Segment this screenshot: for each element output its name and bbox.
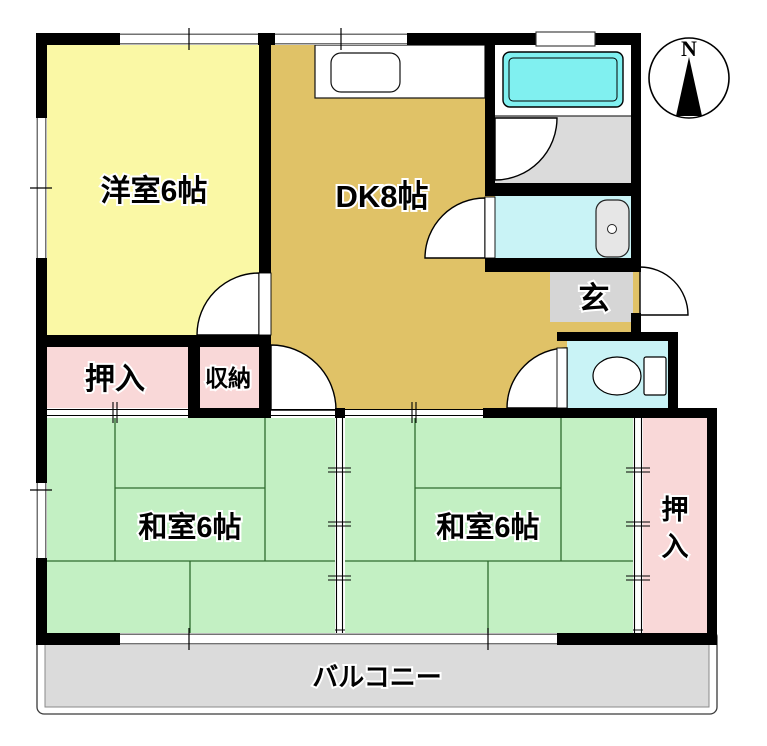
label-dk: DK8帖: [335, 179, 428, 214]
washbasin-unit: [596, 200, 629, 257]
wall-bath-left: [485, 33, 495, 196]
wall-bath-left-post: [485, 258, 495, 272]
wall-bottom-2: [557, 633, 717, 645]
label-closet-right-2: 入: [662, 532, 689, 562]
label-entrance: 玄: [579, 281, 610, 316]
closet-right: [643, 418, 707, 633]
wall-washbasin-entrance: [495, 258, 641, 272]
wall-fusuma-post: [335, 408, 345, 418]
label-western-room: 洋室6帖: [101, 174, 208, 208]
wall-top-3: [407, 33, 536, 45]
wall-mid-south: [483, 408, 717, 418]
window-bath-top: [536, 32, 595, 46]
kitchen-sink: [331, 53, 400, 92]
compass-north-label: N: [681, 36, 697, 61]
label-balcony: バルコニー: [312, 662, 441, 692]
wall-closet-divider: [188, 347, 200, 418]
wall-storage-right: [259, 347, 271, 418]
wall-right-top: [631, 33, 641, 270]
toilet-bowl: [593, 357, 641, 395]
wall-toilet-right: [668, 332, 678, 418]
bathtub: [503, 52, 623, 107]
door-leaf-washbasin: [485, 197, 495, 258]
wall-right-bottom: [707, 408, 717, 645]
window-gap: [536, 32, 595, 46]
label-closet-right-1: 押: [662, 495, 689, 525]
wall-left-1: [36, 33, 47, 118]
floor-plan: 洋室6帖 DK8帖 押入 収納 玄 和室6帖 和室6帖 押 入 バルコニー N: [0, 0, 767, 746]
label-storage: 収納: [205, 365, 251, 391]
wall-western-dk: [259, 33, 271, 273]
door-leaf-toilet: [557, 348, 567, 408]
toilet: [593, 357, 666, 395]
bathtub-outer: [503, 52, 623, 107]
wall-left-2: [36, 258, 47, 483]
label-tatami-right: 和室6帖: [436, 510, 539, 544]
wall-left-3: [36, 558, 47, 645]
wall-western-south: [36, 335, 271, 347]
wall-storage-south: [188, 408, 271, 418]
wall-bottom-1: [36, 633, 120, 645]
label-tatami-left: 和室6帖: [138, 510, 241, 544]
wall-toilet-top: [557, 332, 678, 341]
kitchen-counter: [315, 45, 485, 98]
washbasin-drain: [608, 225, 617, 234]
wall-top-1: [36, 33, 120, 45]
toilet-tank: [644, 357, 666, 395]
door-leaf-western: [259, 273, 271, 335]
wall-dressing-washbasin: [485, 183, 641, 196]
window-gap: [120, 633, 557, 645]
floor-plan-canvas: 洋室6帖 DK8帖 押入 収納 玄 和室6帖 和室6帖 押 入 バルコニー N: [0, 0, 767, 746]
label-closet-left: 押入: [85, 363, 145, 396]
